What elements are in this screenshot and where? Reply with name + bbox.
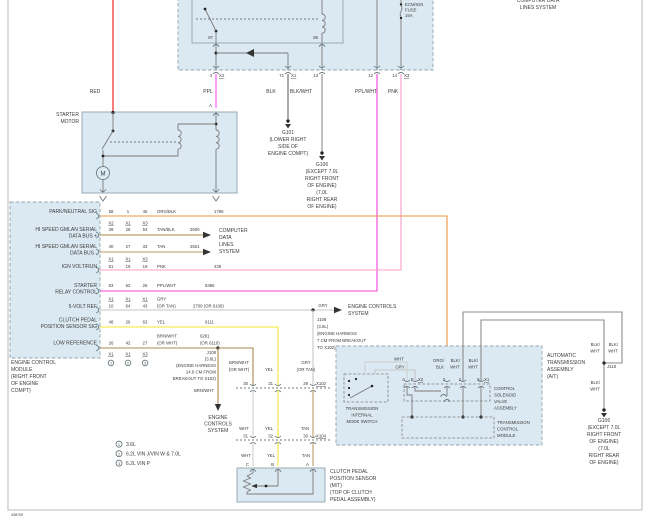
pin-number: 63 [143,320,148,325]
wiring-diagram: 87 86 ECM/IGN FUSE 15A 4 X2 71 X1 13 12 … [0,0,650,529]
pin-number: 58 [109,209,114,214]
circuit-number: 2709 (OR 6109) [193,304,224,309]
wire-color-label: RED [90,89,101,95]
pin-number: 26 [109,341,114,346]
variant-mark: 2 [118,452,120,456]
ground-location: SIDE OF [278,144,298,150]
ground-location: ENGINE COMPT) [268,151,309,157]
wire-color-label: WHT [590,349,600,354]
component-label: TRANSMISSION [346,406,379,411]
pin-number: 40 [109,244,114,249]
connector-label: X1 [142,297,148,302]
splice-note: 7 CM FROM BREAKOUT [317,338,366,343]
wire-color-label: YEL [267,453,276,458]
component-label: TRANSMISSION [497,420,530,425]
wire-color-label: WHT [468,365,478,370]
pin-number: 30 [303,434,308,439]
wire-color-label: TAN [301,426,309,431]
destination-label: SYSTEM [348,311,369,317]
wire-color-label: (OR WHT) [229,367,250,372]
component-label: CONTROL [497,427,519,432]
splice-note: (3.6L) [317,324,329,329]
variant-mark: 2 [127,362,129,366]
wire-color-label: PNK [157,264,166,269]
connector-label: X1 [108,257,114,262]
ground-name: G106 [316,162,328,168]
pin-number: 13 [313,73,318,78]
pin-number: 26 [126,320,131,325]
wire-color-label: ORG/BLK [157,209,176,214]
wire-color-label: WHT [239,426,249,431]
legend-item: 6.2L VIN P [126,461,151,467]
switch-contact-dot [348,380,350,382]
ecm-row-label: DATA BUS + [69,234,97,240]
component-label: POSITION SENSOR [330,476,377,482]
splice-note: J109 [317,317,327,322]
splice-note: (ENGINE HARNESS [176,363,216,368]
wire-color-label: YEL [265,426,274,431]
ecm-row-label: IGN VOLT/RUN [62,264,98,270]
ecm-row-label: CLUTCH PEDAL [59,318,97,324]
splice-note: BREAKOUT TO X102) [173,376,217,381]
ground-location: RIGHT REAR [307,197,338,203]
destination-label: CONTROLS [204,422,232,428]
wire-color-label: TAN/BLK [157,227,175,232]
wiring-diagram-page: 87 86 ECM/IGN FUSE 15A 4 X2 71 X1 13 12 … [0,0,650,529]
wire-color-label: (OR TAN) [157,304,176,309]
pin-number: 14 [392,73,397,78]
wire-color-label: PNK [388,89,399,95]
ecm-row-label: HI SPEED GMLAN SERIAL [35,227,97,233]
wire-color-label: ORG/ [433,358,445,363]
terminal-letter: C [246,462,249,467]
wire-color-label: BLK/ [451,358,461,363]
pin-number: 19 [126,264,131,269]
splice-note: (ENGINE HARNESS [317,331,357,336]
component-label: MODULE [11,367,33,373]
pin-number: 53 [143,227,148,232]
circuit-number: 439 [214,264,222,269]
splice-note: TO X102) [317,345,336,350]
junction-dot [602,361,605,364]
ground-location: RIGHT FRONT [587,432,621,438]
connector-label: X1 [108,352,114,357]
connector-label: X1 [484,377,490,382]
component-label: SOLENOID [494,393,516,398]
wire-color-label: BLK [266,89,276,95]
destination-label: LINES [219,242,234,248]
component-label: STARTER [56,112,79,118]
destination-label: COMPUTER DATA [517,0,560,4]
connector-label: X3 [404,73,410,78]
switch-contact-dot [355,378,357,380]
pin-number: 28 [126,227,131,232]
connector-label: X1 [125,352,131,357]
terminal-letter: A [402,377,405,382]
connector-label: X1 [108,297,114,302]
junction-dot [265,485,268,488]
destination-label: SYSTEM [208,428,229,434]
wire-color-label: BLK/ [469,358,479,363]
component-label: PEDAL ASSEMBLY) [330,497,376,503]
destination-label: COMPUTER [219,228,248,234]
ground-location: RIGHT FRONT [305,176,339,182]
wire-color-label: WHT [394,357,404,362]
ecm-row-label: HI SPEED GMLAN SERIAL [35,244,97,250]
pin-number: 12 [368,73,373,78]
motor-letter: M [101,172,106,178]
component-label: MODE SWITCH [346,419,377,424]
pin-number: 71 [279,73,284,78]
ecm-row-label: RELAY CONTROL [55,290,97,296]
switch-contact-dot [348,387,350,389]
splice-note: J108 [207,350,217,355]
underhood-fuse-block: 87 86 ECM/IGN FUSE 15A 4 X2 71 X1 13 12 … [178,0,433,78]
ground-location: (7.0L [316,190,328,196]
ecm-outline [10,202,100,358]
circuit-number: 2501 [190,244,200,249]
wire-color-label: (OR TAN) [297,367,316,372]
document-number: 438709 [11,513,23,517]
connector-label: X3 [142,352,148,357]
wire-color-label: (OR WHT) [157,341,178,346]
relay-contact-dot [204,8,207,11]
wire-color-label: WHT [450,365,460,370]
pin-number: 63 [109,283,114,288]
component-label: (RIGHT FRONT [11,374,47,380]
wire-color-label: WHT [590,387,600,392]
variant-mark: 1 [110,362,112,366]
wire-color-label: PPL [203,89,213,95]
destination-label: LINES SYSTEM [520,5,556,11]
circuit-number: (OR 6110) [200,341,220,346]
pin-number: 52 [126,283,131,288]
pin-number: 46 [143,209,148,214]
sensor-outline [237,468,325,502]
pin-number: 33 [143,244,148,249]
wire-color-label: BRN/WHT [157,334,177,339]
wire-color-label: BRN/WHT [194,388,214,393]
wire-color-label: BLK/ [591,342,601,347]
terminal-letter: A [306,462,309,467]
ground-location: RIGHT REAR [589,453,620,459]
wire-color-label: GRY [301,360,310,365]
fuse-name: FUSE [405,8,417,13]
connector-label: X3 [142,221,148,226]
destination-label: ENGINE [208,415,228,421]
splice-note: (3.6L) [205,357,217,362]
connector-label: X1 [125,221,131,226]
connector-label: X1 [291,73,297,78]
ecm-row-label: POSITION SENSOR SIG [41,324,98,330]
relay-pin-86: 86 [313,35,318,40]
switch-contact-dot [348,394,350,396]
top-right-destination: COMPUTER DATA LINES SYSTEM [517,0,560,11]
pin-number: 31 [243,434,248,439]
pin-number: 64 [126,304,131,309]
ground-name: G106 [598,418,610,424]
ecm-row-label: 5-VOLT REF [69,304,97,310]
circuit-number: 1786 [214,209,224,214]
connector-label: X2 [418,377,424,382]
destination-label: ENGINE CONTROLS [348,304,397,310]
wire-color-label: TAN [157,244,165,249]
terminal-letter: B [271,462,274,467]
fuse-terminal-dot [400,3,402,5]
ground-location: OF ENGINE) [307,204,337,210]
component-label: VALVE [494,399,507,404]
ground-location: OF ENGINE) [589,439,619,445]
circuit-number: 6386 [205,283,215,288]
pin-number: 42 [126,341,131,346]
ground-location: OF ENGINE) [589,460,619,466]
wire-color-label: TAN [302,453,310,458]
component-label: MOTOR [60,119,79,125]
wire-color-label: BLK/ [609,342,619,347]
component-label: AUTOMATIC [547,353,576,359]
ecm-row-label: STARTER [74,283,97,289]
wire-color-label: WHT [608,349,618,354]
pin-number: 19 [143,264,148,269]
wire-color-label: BLK/WHT [290,89,312,95]
component-label: ENGINE CONTROL [11,360,56,366]
pin-number: 27 [126,244,131,249]
legend-item: 3.6L [126,442,136,448]
circuit-number: 2500 [190,227,200,232]
component-label: OF ENGINE [11,381,39,387]
wire-color-label: PPL/WHT [355,89,377,95]
wire-color-label: GRY [318,303,327,308]
component-label: (TOP OF CLUTCH [330,490,372,496]
destination-label: DATA [219,235,232,241]
pin-number: 43 [143,304,148,309]
pin-number: 26 [143,283,148,288]
connector-label: X2 [108,221,114,226]
ground-location: (EXCEPT 7.0L [306,169,339,175]
wire-color-label: GRY [395,365,404,370]
ground-location: (LOWER RIGHT [270,137,307,143]
fuse-name: ECM/IGN [405,2,423,7]
component-label: INTERNAL [351,413,373,418]
relay-pin-87: 87 [208,35,213,40]
connector-label: X104 [316,434,327,439]
splice-note: 14.6 CM FROM [186,370,217,375]
wire-color-label: PPL/WHT [157,283,176,288]
pin-number: 31 [268,381,273,386]
circuit-number: 6111 [205,320,215,325]
wire-color-label: BLK/ [591,380,601,385]
pin-number: 39 [109,227,114,232]
terminal-letter: F [411,377,414,382]
connector-label: X1 [125,257,131,262]
wire-color-label: WHT [241,453,251,458]
connector-label: X3 [142,257,148,262]
terminal-letter: A [209,103,212,108]
component-label: CLUTCH PEDAL [330,469,368,475]
pin-number: 29 [303,381,308,386]
ecm-row-label: PARK/NEUTRAL SIG [49,209,97,215]
wire-color-label: BRN/WHT [229,360,249,365]
ground-name: G101 [282,130,294,136]
component-label: ASSEMBLY [547,367,574,373]
component-label: (M/T) [330,483,342,489]
starter-motor: STARTER MOTOR M [56,111,237,201]
component-label: COMPT) [11,388,31,394]
ground-location: OF ENGINE) [307,183,337,189]
component-label: ASSEMBLY [494,406,517,411]
wire-color-label: YEL [157,320,166,325]
variant-mark: 3 [118,462,120,466]
pin-number: 30 [243,381,248,386]
pin-number: 32 [268,434,273,439]
wire-color-label: YEL [265,367,274,372]
wire-color-label: BLK [436,365,444,370]
destination-label: SYSTEM [219,249,240,255]
ecm-row-label: DATA BUS - [70,251,97,257]
legend-item: 6.2L VIN J/VIN W & 7.0L [126,452,181,458]
circuit-number: 6281 [200,334,210,339]
pin-number: 48 [109,320,114,325]
connector-label: X1 [125,297,131,302]
ground-location: (7.0L [598,446,610,452]
connector-label: X102 [316,381,327,386]
component-label: (A/T) [547,374,558,380]
wire-color-label: GRY [157,297,166,302]
pin-number: 51 [109,264,114,269]
component-label: CONTROL [494,386,516,391]
ground-location: (EXCEPT 7.0L [588,425,621,431]
component-label: TRANSMISSION [547,360,585,366]
fuse-rating: 15A [405,13,413,18]
variant-mark: 1 [118,443,120,447]
splice-label: J118 [607,364,617,369]
ecm-row-label: LOW REFERENCE [53,341,97,347]
pin-number: 10 [109,304,114,309]
switch-contact-dot [371,385,374,388]
junction-dot [102,155,105,158]
variant-mark: 3 [144,362,146,366]
connector-label: X2 [219,73,225,78]
pin-number: 27 [143,341,148,346]
fuse-terminal-dot [400,17,402,19]
component-label: MODULE [497,433,516,438]
